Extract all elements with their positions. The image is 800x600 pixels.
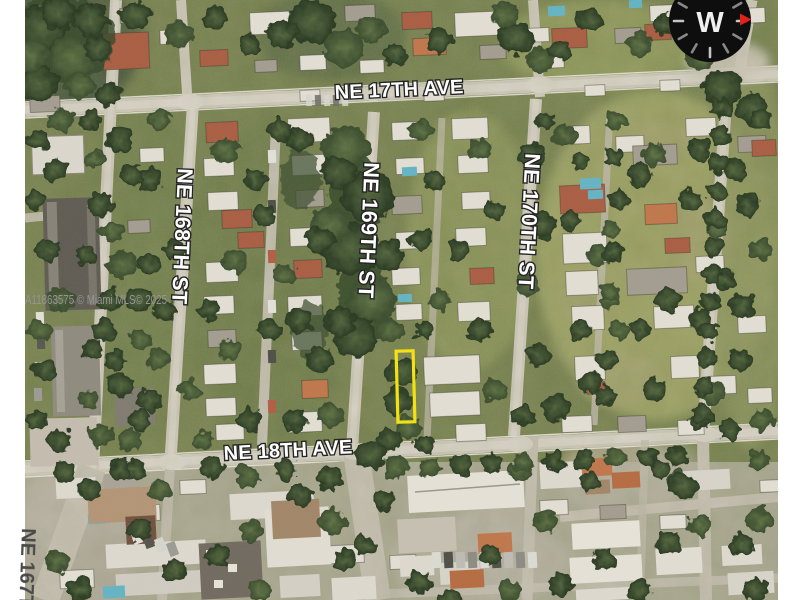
svg-text:W: W bbox=[696, 7, 724, 39]
svg-text:NE 167TH: NE 167TH bbox=[14, 528, 39, 600]
svg-text:A11863575 © Miami MLS© 2025: A11863575 © Miami MLS© 2025 bbox=[25, 292, 167, 307]
